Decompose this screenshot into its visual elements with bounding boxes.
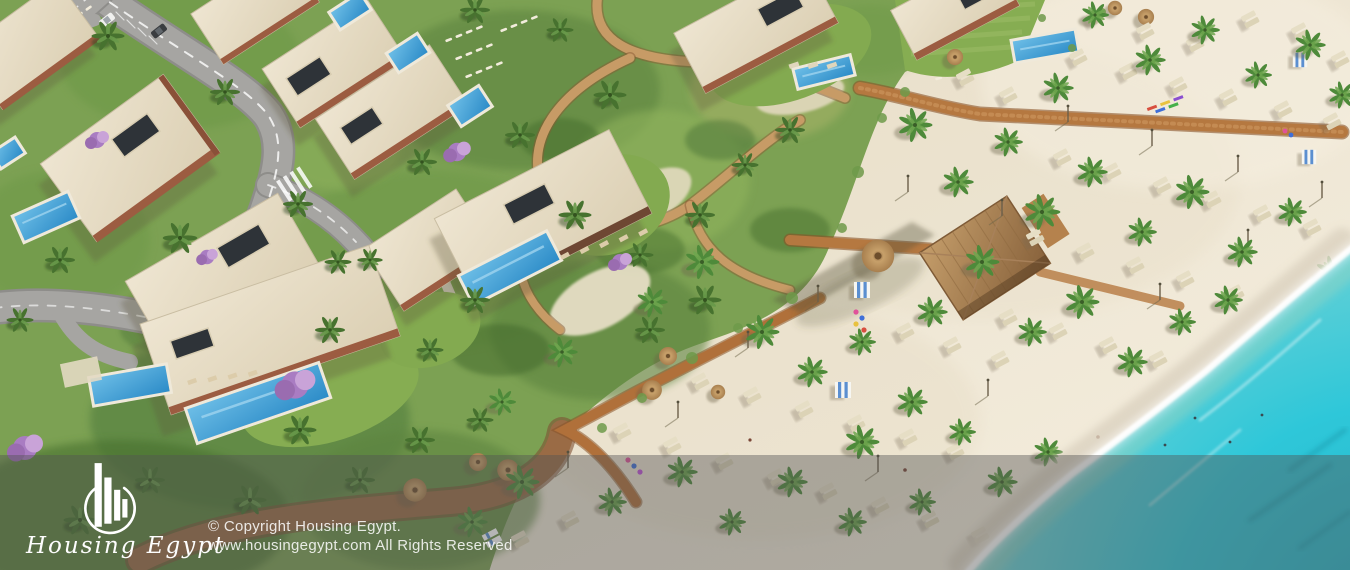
- watermark-bar: Housing Egypt © Copyright Housing Egypt.…: [0, 455, 1350, 570]
- copyright-line2: www.housingegypt.com All Rights Reserved: [208, 536, 513, 555]
- copyright-text: © Copyright Housing Egypt. www.housingeg…: [208, 517, 513, 555]
- brand-block: Housing Egypt: [26, 459, 194, 559]
- copyright-line1: © Copyright Housing Egypt.: [208, 517, 513, 536]
- brand-wordmark: Housing Egypt: [26, 533, 194, 559]
- housing-egypt-buildings-logo-icon: [79, 459, 141, 535]
- resort-aerial-screenshot: Housing Egypt © Copyright Housing Egypt.…: [0, 0, 1350, 570]
